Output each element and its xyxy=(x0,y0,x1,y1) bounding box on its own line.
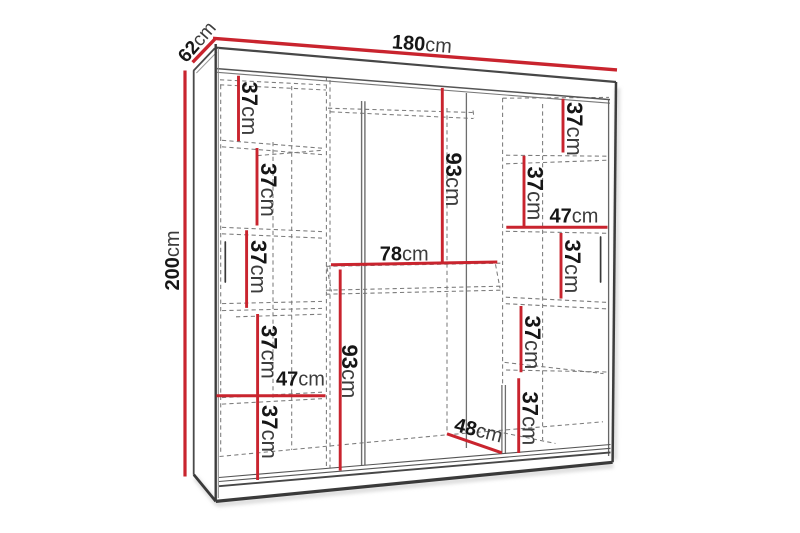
svg-text:200cm: 200cm xyxy=(162,230,184,290)
svg-text:37cm: 37cm xyxy=(560,240,585,294)
svg-text:37cm: 37cm xyxy=(246,240,271,294)
svg-text:37cm: 37cm xyxy=(257,405,282,459)
svg-text:93cm: 93cm xyxy=(441,153,466,207)
svg-text:37cm: 37cm xyxy=(256,163,281,217)
svg-text:47cm: 47cm xyxy=(550,206,599,228)
svg-text:37cm: 37cm xyxy=(237,82,262,136)
svg-text:37cm: 37cm xyxy=(523,167,548,221)
svg-text:78cm: 78cm xyxy=(380,243,429,265)
svg-text:180cm: 180cm xyxy=(391,31,453,58)
svg-text:93cm: 93cm xyxy=(337,345,362,399)
svg-text:37cm: 37cm xyxy=(562,102,587,156)
svg-text:47cm: 47cm xyxy=(276,368,325,390)
svg-text:37cm: 37cm xyxy=(520,316,545,370)
svg-text:37cm: 37cm xyxy=(257,325,282,379)
svg-text:37cm: 37cm xyxy=(517,392,542,446)
